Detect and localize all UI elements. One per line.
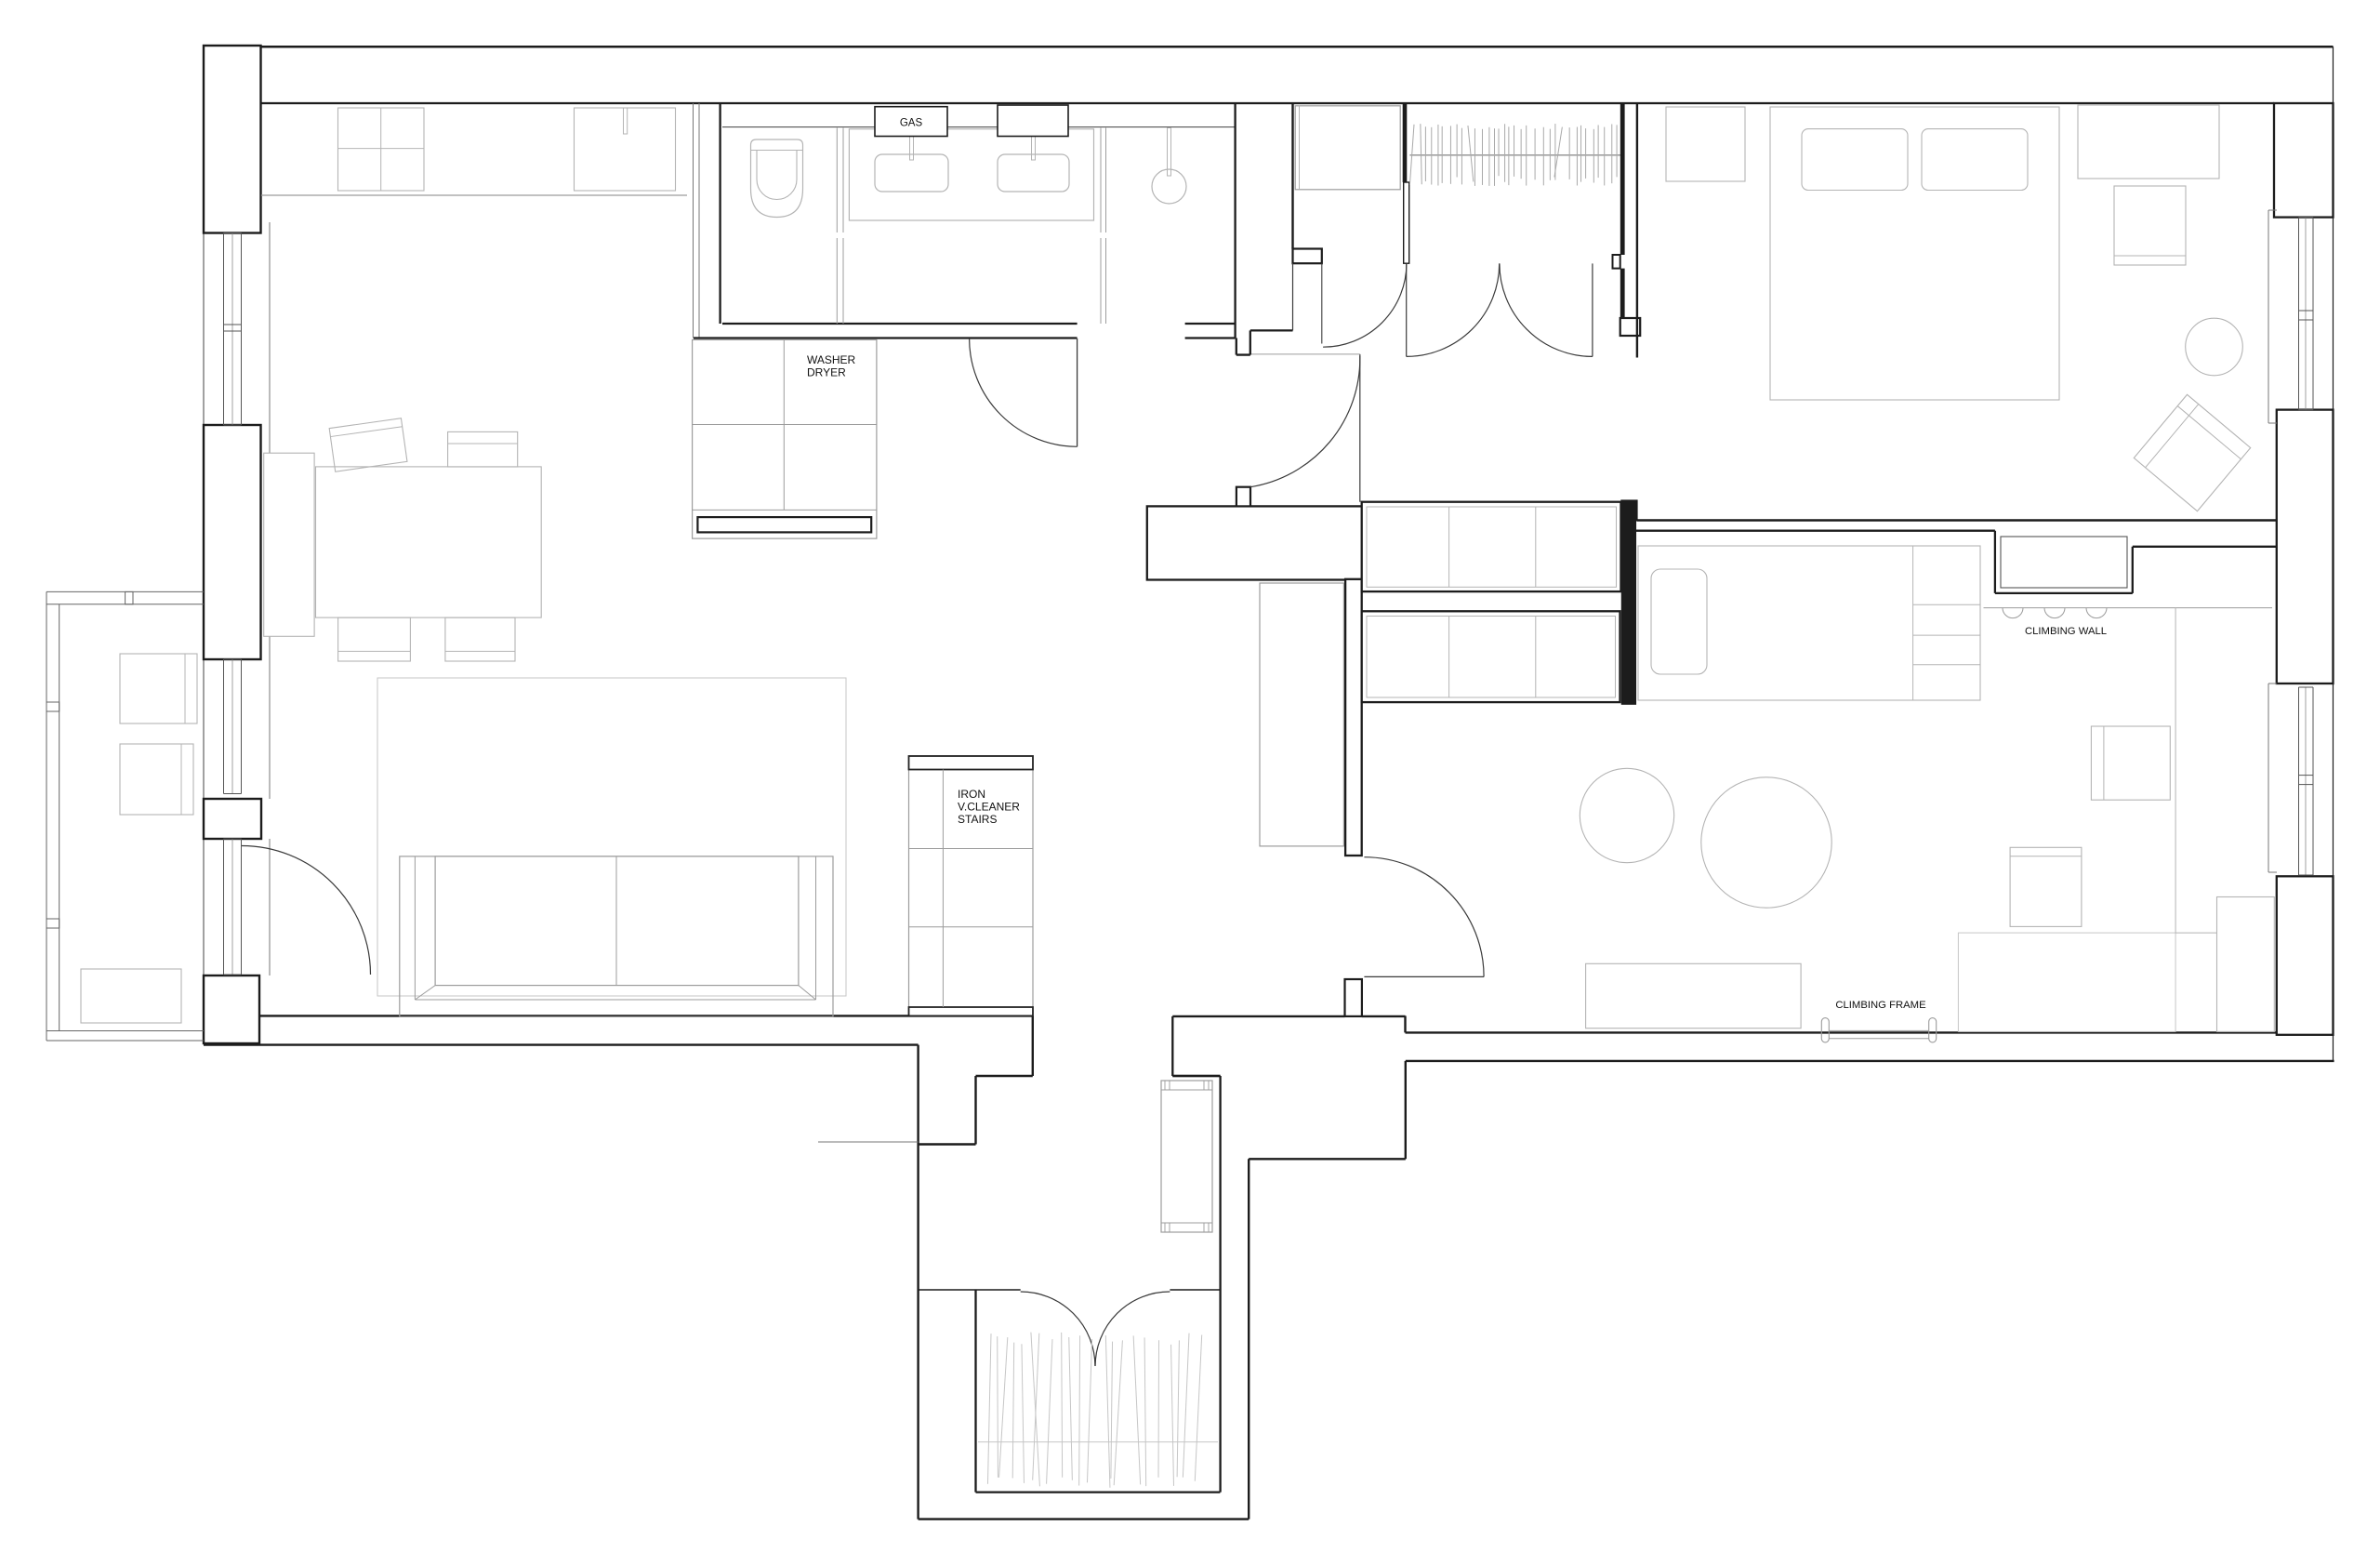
- svg-text:CLIMBING WALL: CLIMBING WALL: [2025, 626, 2107, 637]
- svg-text:STAIRS: STAIRS: [958, 813, 997, 826]
- svg-text:V.CLEANER: V.CLEANER: [958, 801, 1020, 814]
- svg-text:IRON: IRON: [958, 788, 985, 801]
- svg-text:WASHER: WASHER: [807, 353, 856, 366]
- svg-text:GAS: GAS: [900, 118, 923, 129]
- svg-text:CLIMBING FRAME: CLIMBING FRAME: [1835, 1000, 1926, 1011]
- svg-text:DRYER: DRYER: [807, 366, 846, 379]
